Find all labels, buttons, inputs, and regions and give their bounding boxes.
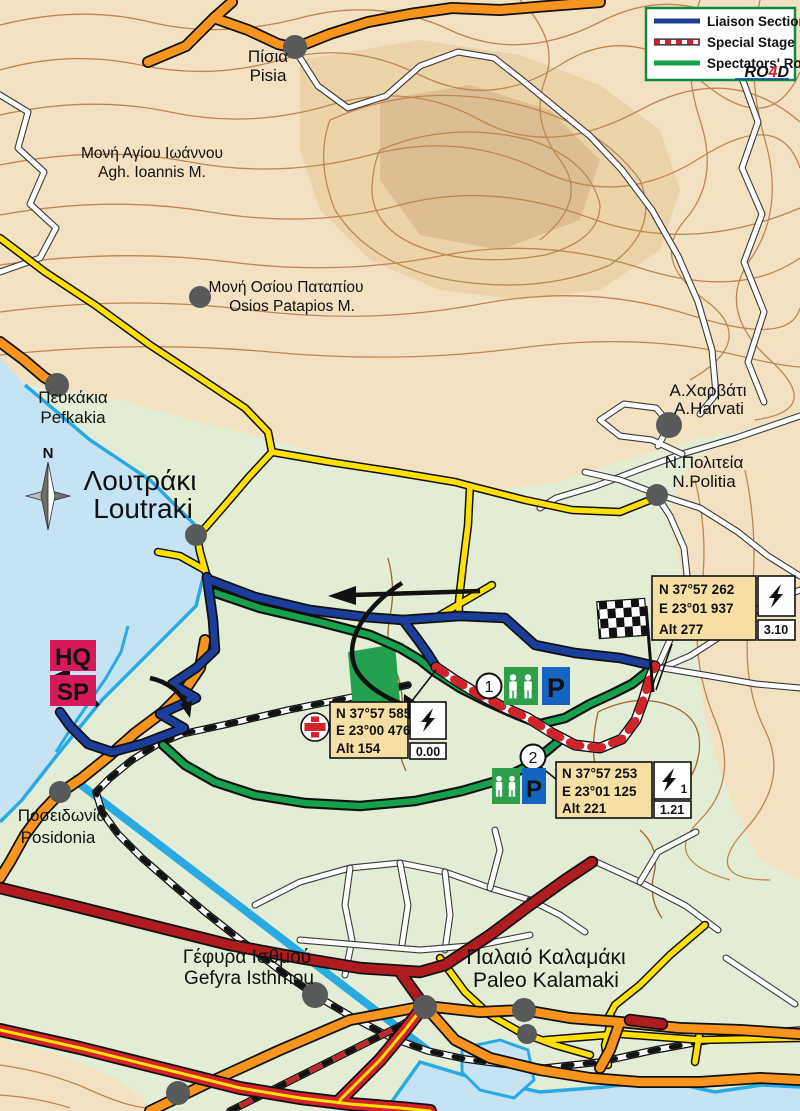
town-dot-posidonia	[49, 781, 71, 803]
label-agh-ioannis-en: Agh. Ioannis M.	[98, 164, 206, 181]
label-pisia-gr: Πίσια	[248, 47, 288, 66]
town-dot-npolitia	[646, 484, 668, 506]
label-posidonia-gr: Ποσειδωνία	[18, 806, 107, 825]
label-agh-ioannis-gr: Μονή Αγίου Ιωάννου	[81, 145, 223, 162]
parking-2-label: P	[526, 776, 542, 803]
label-pisia-en: Pisia	[250, 66, 287, 85]
spectator-point-1-number: 1	[485, 679, 494, 696]
parking-1-label: P	[547, 673, 565, 703]
start-alt: Alt 154	[336, 741, 381, 756]
spectator-point-2-number: 2	[529, 750, 538, 767]
label-loutraki-gr: Λουτράκι	[84, 465, 197, 496]
finish-alt: Alt 277	[659, 622, 703, 637]
waypoint-finish: N 37°57 262 E 23°01 937 Alt 277 3.10	[652, 576, 795, 640]
north-label: N	[43, 445, 54, 462]
label-posidonia-en: Posidonia	[21, 828, 96, 847]
waypoint-start: N 37°57 585 E 23°00 476 Alt 154 0.00	[330, 702, 446, 759]
town-dot-kalamaki-2	[517, 1024, 537, 1044]
label-gefyra-en: Gefyra Isthmou	[184, 968, 314, 989]
label-harvati-en: A.Harvati	[674, 399, 744, 418]
radio-km: 1.21	[660, 803, 684, 817]
label-patapios-en: Osios Patapios M.	[229, 298, 355, 315]
label-gefyra-gr: Γέφυρα Ισθμού	[183, 947, 311, 968]
label-kalamaki-en: Paleo Kalamaki	[473, 969, 619, 992]
radio-lon: E 23°01 125	[562, 784, 637, 799]
label-pefkakia-gr: Πευκάκια	[38, 388, 108, 407]
hq-badge-label: HQ	[55, 644, 91, 671]
label-loutraki-en: Loutraki	[93, 493, 193, 524]
label-harvati-gr: Α.Χαρβάτι	[670, 381, 747, 400]
town-dot-kalamaki	[512, 998, 536, 1022]
town-dot-interchange	[413, 995, 437, 1019]
start-lat: N 37°57 585	[336, 706, 412, 721]
legend: Liaison Section Special Stage Spectators…	[646, 8, 800, 81]
spectator-point-1: 1 P	[477, 667, 571, 705]
label-npolitia-en: N.Politia	[672, 472, 736, 491]
radio-number: 1	[681, 784, 688, 796]
label-pefkakia-en: Pefkakia	[40, 408, 106, 427]
radio-alt: Alt 221	[562, 801, 607, 816]
legend-special-stage-label: Special Stage	[707, 35, 795, 50]
legend-liaison-label: Liaison Section	[707, 14, 800, 29]
spectator-area-icon	[504, 667, 538, 705]
waypoint-radio: N 37°57 253 E 23°01 125 Alt 221 1 1.21	[556, 762, 691, 818]
label-patapios-gr: Μονή Οσίου Παταπίου	[209, 279, 364, 296]
medical-point-icon	[301, 713, 329, 741]
rally-map: N HQ SP N 37°57 585 E 23°00 476 Alt 154 …	[0, 0, 800, 1111]
start-km: 0.00	[416, 745, 440, 759]
label-npolitia-gr: Ν.Πολιτεία	[665, 453, 744, 472]
town-dot-loutraki	[185, 524, 207, 546]
start-lon: E 23°00 476	[336, 723, 411, 738]
sp-badge-label: SP	[57, 679, 89, 706]
town-dot-southwest	[166, 1081, 190, 1105]
radio-lat: N 37°57 253	[562, 766, 638, 781]
finish-lon: E 23°01 937	[659, 601, 733, 616]
finish-lat: N 37°57 262	[659, 582, 734, 597]
finish-km: 3.10	[764, 623, 788, 637]
label-kalamaki-gr: Παλαιό Καλαμάκι	[466, 946, 626, 969]
